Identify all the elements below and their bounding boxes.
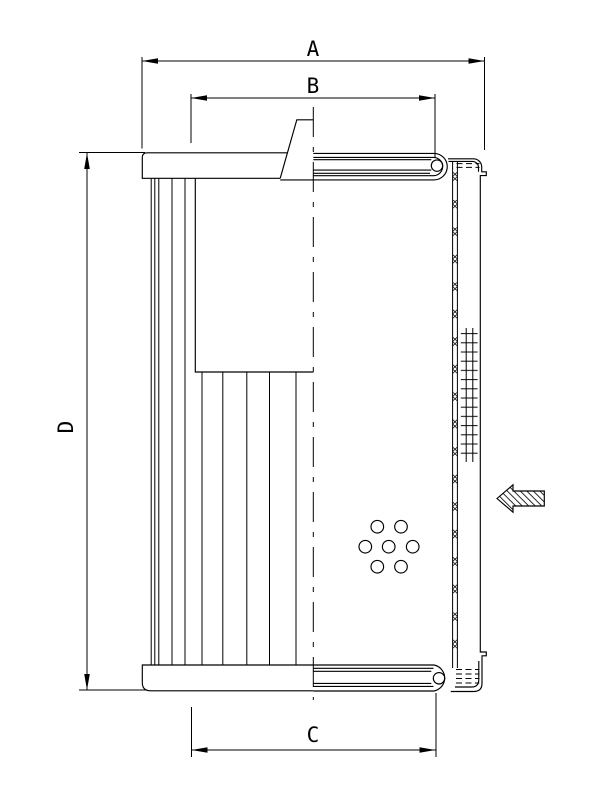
perforation-holes — [359, 520, 419, 573]
perforation-hole — [382, 540, 395, 553]
dimension-b-label: B — [307, 74, 320, 98]
core-tube-hatch — [453, 172, 458, 664]
dimension-c-arrow-left — [192, 747, 208, 753]
pleat-lines-lower — [202, 372, 296, 665]
gasket-top-dashed — [457, 164, 480, 168]
dimension-c-arrow-right — [420, 747, 436, 753]
bottom-seam-roll — [433, 673, 444, 684]
dimension-a-arrow-right — [469, 58, 485, 64]
top-cap-sheet-lines — [313, 160, 431, 174]
bottom-cap-curl — [434, 665, 445, 691]
dimension-d: D — [54, 153, 146, 691]
perforation-hole — [359, 540, 372, 553]
top-cap-break-line — [280, 120, 313, 179]
drawing-sheet: A B C D — [0, 0, 612, 792]
perforation-hole — [395, 560, 408, 573]
perforation-hole — [371, 560, 384, 573]
top-cap-exterior — [142, 153, 287, 179]
gasket-bottom-dashed — [456, 670, 479, 684]
bottom-cap-exterior — [142, 665, 313, 691]
top-end-cap — [142, 120, 447, 180]
dimension-c-label: C — [307, 723, 320, 747]
filter-element-drawing: A B C D — [0, 0, 612, 792]
support-mesh — [461, 328, 478, 462]
bottom-cap-sheet-lines — [313, 668, 433, 686]
dimension-d-label: D — [54, 421, 78, 434]
bottom-cap-section-outer — [313, 665, 434, 691]
dimension-b-arrow-right — [419, 95, 435, 101]
bottom-end-cap — [142, 665, 444, 691]
outer-wrap-band — [195, 178, 313, 372]
dimension-d-arrow-bottom — [84, 674, 90, 690]
dimension-b-arrow-left — [191, 95, 207, 101]
perforation-hole — [406, 540, 419, 553]
dimension-c: C — [192, 693, 437, 757]
dimension-a-label: A — [307, 37, 320, 61]
flow-direction-arrow-icon — [497, 485, 544, 512]
top-seam-roll — [431, 160, 442, 171]
perforation-hole — [395, 520, 408, 533]
dimension-a-arrow-left — [142, 58, 158, 64]
core-tube-section — [453, 162, 458, 668]
pleated-media — [151, 178, 296, 665]
perforation-hole — [371, 520, 384, 533]
pleat-lines-full — [151, 178, 185, 665]
mesh-cross-ticks — [461, 333, 478, 460]
dimension-d-arrow-top — [84, 153, 90, 169]
